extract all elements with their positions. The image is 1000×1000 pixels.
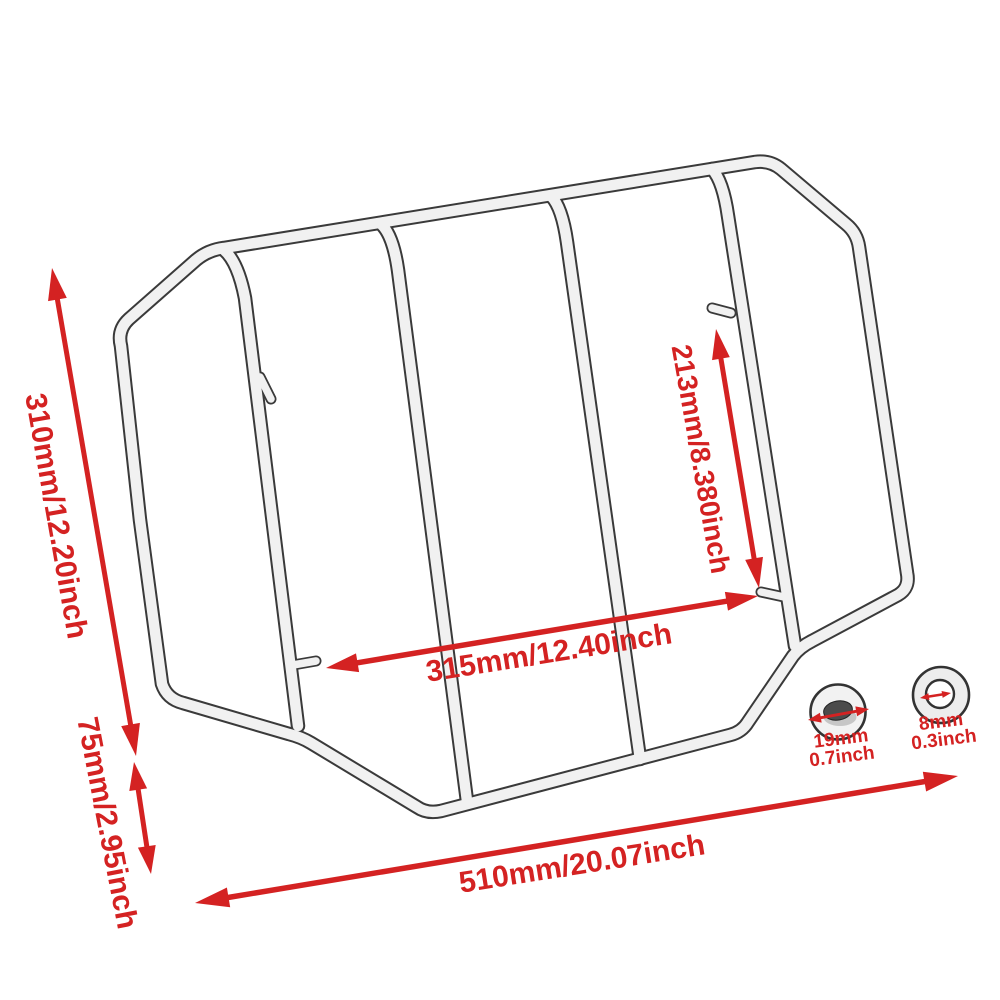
dimension-arrow-side-drop [129,762,155,874]
luggage-rack-drawing [120,162,908,812]
dimension-label-overall-height: 310mm/12.20inch [18,391,94,641]
dimension-arrows [48,268,958,907]
dimension-diagram-canvas: 310mm/12.20inch 75mm/2.95inch 510mm/20.0… [0,0,1000,1000]
dimension-label-inner-width: 315mm/12.40inch [424,617,675,688]
dimension-arrow-overall-width [195,772,958,908]
dimension-diagram: 310mm/12.20inch 75mm/2.95inch 510mm/20.0… [0,0,1000,1000]
